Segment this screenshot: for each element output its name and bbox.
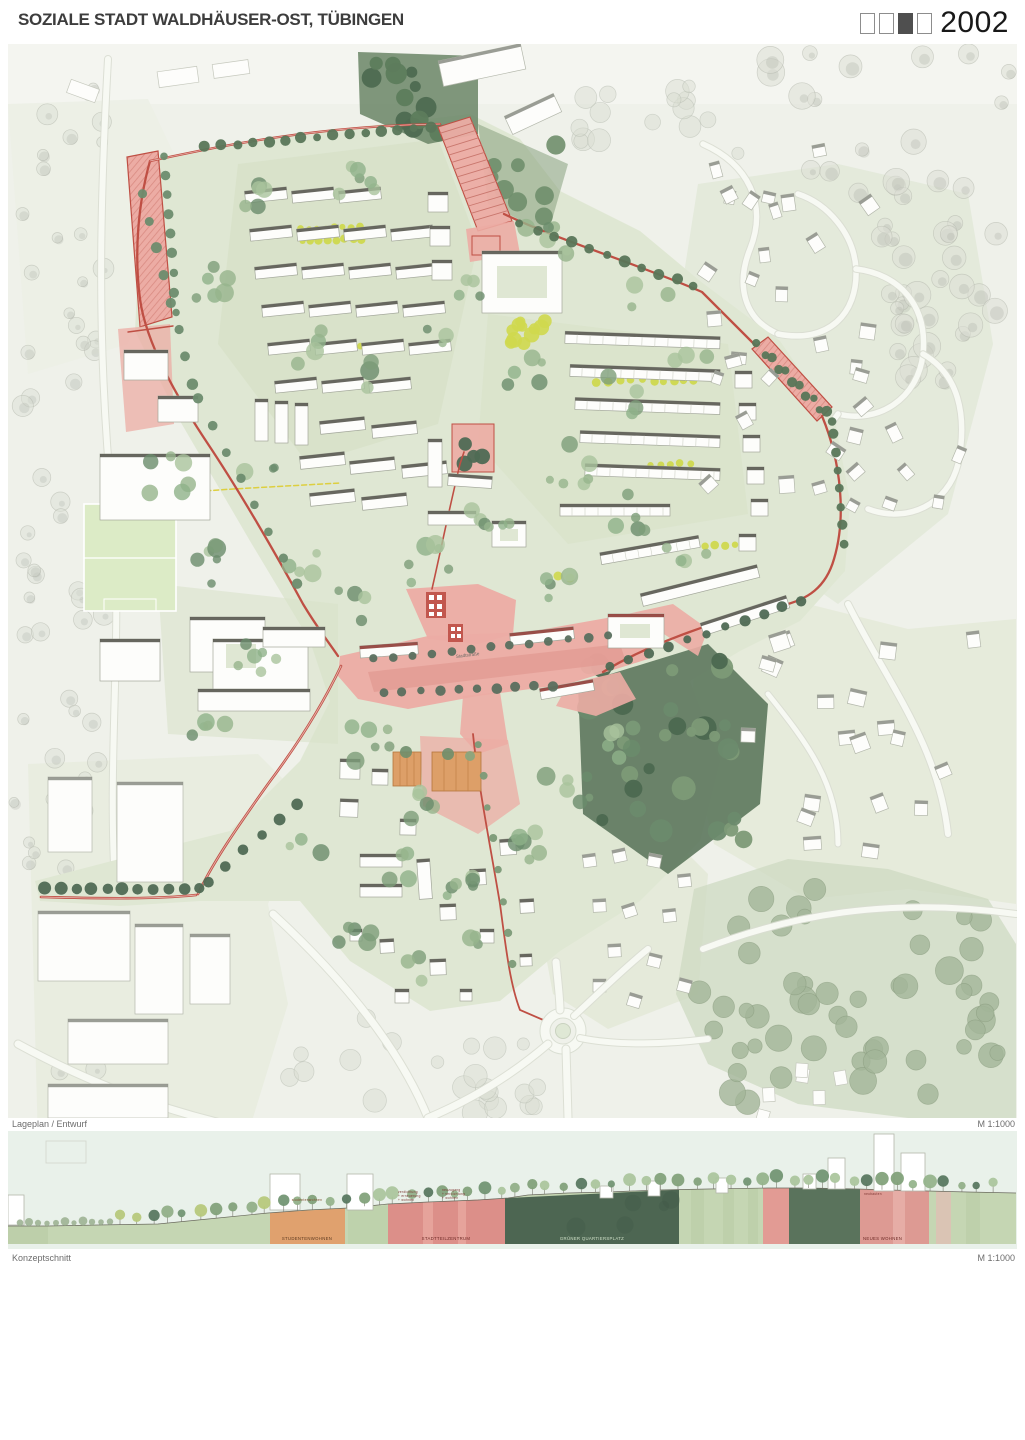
zone-label-stadtteilzentrum: STADTTEILZENTRUM bbox=[422, 1236, 471, 1241]
section-scale: M 1:1000 bbox=[977, 1253, 1015, 1263]
phase-boxes bbox=[860, 13, 932, 34]
concept-section: STUDENTENWOHNENstudentenwohnenSTADTTEILZ… bbox=[8, 1131, 1017, 1249]
zone-label-studentenwohnen: STUDENTENWOHNEN bbox=[282, 1236, 332, 1241]
section-caption-row: Konzeptschnitt M 1:1000 bbox=[12, 1253, 1015, 1263]
zone-note-line: + wohnen bbox=[442, 1196, 458, 1200]
concept-section-drawing: STUDENTENWOHNENstudentenwohnenSTADTTEILZ… bbox=[8, 1131, 1017, 1249]
site-plan-drawing: Stadtstraße bbox=[8, 44, 1017, 1118]
phase-box bbox=[860, 13, 875, 34]
site-plan-map: Stadtstraße bbox=[8, 44, 1017, 1118]
phase-box bbox=[879, 13, 894, 34]
board-header: SOZIALE STADT WALDHÄUSER-OST, TÜBINGEN 2… bbox=[18, 6, 1015, 42]
presentation-board: SOZIALE STADT WALDHÄUSER-OST, TÜBINGEN 2… bbox=[0, 0, 1025, 1440]
map-caption-row: Lageplan / Entwurf M 1:1000 bbox=[12, 1119, 1015, 1129]
phase-box bbox=[898, 13, 913, 34]
map-scale: M 1:1000 bbox=[977, 1119, 1015, 1129]
map-caption: Lageplan / Entwurf bbox=[12, 1119, 87, 1129]
section-caption: Konzeptschnitt bbox=[12, 1253, 71, 1263]
phase-indicator: 2002 bbox=[860, 6, 1009, 40]
zone-note-studentenwohnen: studentenwohnen bbox=[292, 1198, 323, 1202]
zone-note-neues-wohnen: neubauten bbox=[864, 1192, 882, 1196]
year-label: 2002 bbox=[940, 6, 1009, 40]
zone-note-line: + wohnen bbox=[398, 1198, 414, 1202]
zone-label-neues-wohnen: NEUES WOHNEN bbox=[863, 1236, 902, 1241]
phase-box bbox=[917, 13, 932, 34]
zone-label-gruener-quartiersplatz: GRÜNER QUARTIERSPLATZ bbox=[560, 1236, 624, 1241]
page-title: SOZIALE STADT WALDHÄUSER-OST, TÜBINGEN bbox=[18, 10, 404, 30]
